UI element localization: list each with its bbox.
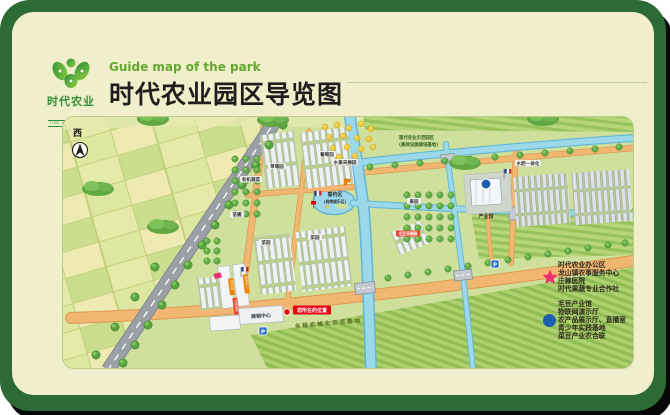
svg-text:您所在的位置: 您所在的位置 [297,307,327,314]
logo-emblem-icon [49,56,93,88]
legend-item: 庄稼医院 [558,277,619,285]
svg-text:菜园: 菜园 [309,234,320,241]
svg-text:苗圃: 苗圃 [232,211,242,218]
label-fruit-pick: 水果采摘园 [332,159,358,166]
legend-item: 时代农业办公区 [558,261,619,269]
compass-west-label: 西 [73,128,82,139]
label-industry-hall: 产业馆 [478,213,493,220]
svg-text:果园: 果园 [409,198,419,205]
star-icon [542,269,558,285]
map-legend: 时代农业办公区 龙山镇农事服务中心 庄稼医院 时代果蔬专业合作社 毛豆产业馆 物… [541,261,634,347]
svg-text:有机蔬菜: 有机蔬菜 [242,176,261,183]
parking-icon: P [491,260,499,268]
legend-item: 菜豆产业农合联 [558,332,626,340]
label-zone-1: 现代农业示范园区 [399,134,435,141]
title-chinese: 时代农业园区导览图 [109,75,343,111]
park-map: 办公区 服务中心 庄稼医院 [62,116,634,369]
label-zone-2: (高效设施栽培基地) [399,141,438,148]
legend-star-group: 时代农业办公区 龙山镇农事服务中心 庄稼医院 时代果蔬专业合作社 [541,261,634,293]
legend-item: 龙山镇农事服务中心 [558,269,619,277]
crop-rows-top [363,117,634,132]
svg-text:葡萄园: 葡萄园 [319,151,334,158]
label-strawberry: 草莓园 [268,163,286,170]
page-title: Guide map of the park 时代农业园区导览图 [109,60,343,111]
legend-dot-group: 毛豆产业馆 物联网演示厅 农产品展示厅、直播室 青少年实践基地 菜豆产业农合联 [541,300,634,340]
blue-dot-marker-map [481,179,491,189]
logo-name: 时代农业 [42,93,100,109]
svg-text:水果采摘园: 水果采摘园 [334,159,357,166]
svg-text:菜园: 菜园 [260,239,271,246]
legend-item: 毛豆产业馆 [558,300,626,308]
blue-dot-icon [543,314,556,327]
label-water-fert: 水肥一体化 [515,160,541,167]
svg-text:水肥一体化: 水肥一体化 [517,160,540,167]
poster: 时代农业 TIME AGRICULTURE Guide map of the p… [0,0,670,415]
legend-item: 青少年实践基地 [558,324,626,332]
parking-icon: P [259,327,267,335]
label-veg: 菜园 [259,239,273,246]
legend-item: 时代果蔬专业合作社 [558,285,619,293]
label-veg: 菜园 [308,234,322,241]
title-english: Guide map of the park [109,60,343,74]
legend-item: 农产品展示厅、直播室 [558,316,626,324]
label-nursery: 苗圃 [230,211,244,218]
cream-card: 时代农业 TIME AGRICULTURE Guide map of the p… [12,12,654,395]
title-divider [347,82,647,83]
legend-item: 物联网演示厅 [558,308,626,316]
label-exhibition: 展销中心 [250,312,271,320]
label-organic: 有机蔬菜 [240,176,262,183]
svg-text:毛豆采摘园: 毛豆采摘园 [399,231,418,236]
label-edamame: 毛豆采摘园 [396,231,420,237]
industry-hall-building [464,171,513,214]
label-fishing: 垂钓区 [327,191,342,198]
label-fishing-sub: (烧烤娱乐区) [324,199,347,204]
svg-text:P: P [261,329,265,335]
svg-text:草莓园: 草莓园 [270,163,284,170]
label-orchard: 果园 [407,198,421,205]
duck-icon [325,205,328,208]
svg-text:P: P [493,262,497,268]
label-grape: 葡萄园 [318,151,336,158]
